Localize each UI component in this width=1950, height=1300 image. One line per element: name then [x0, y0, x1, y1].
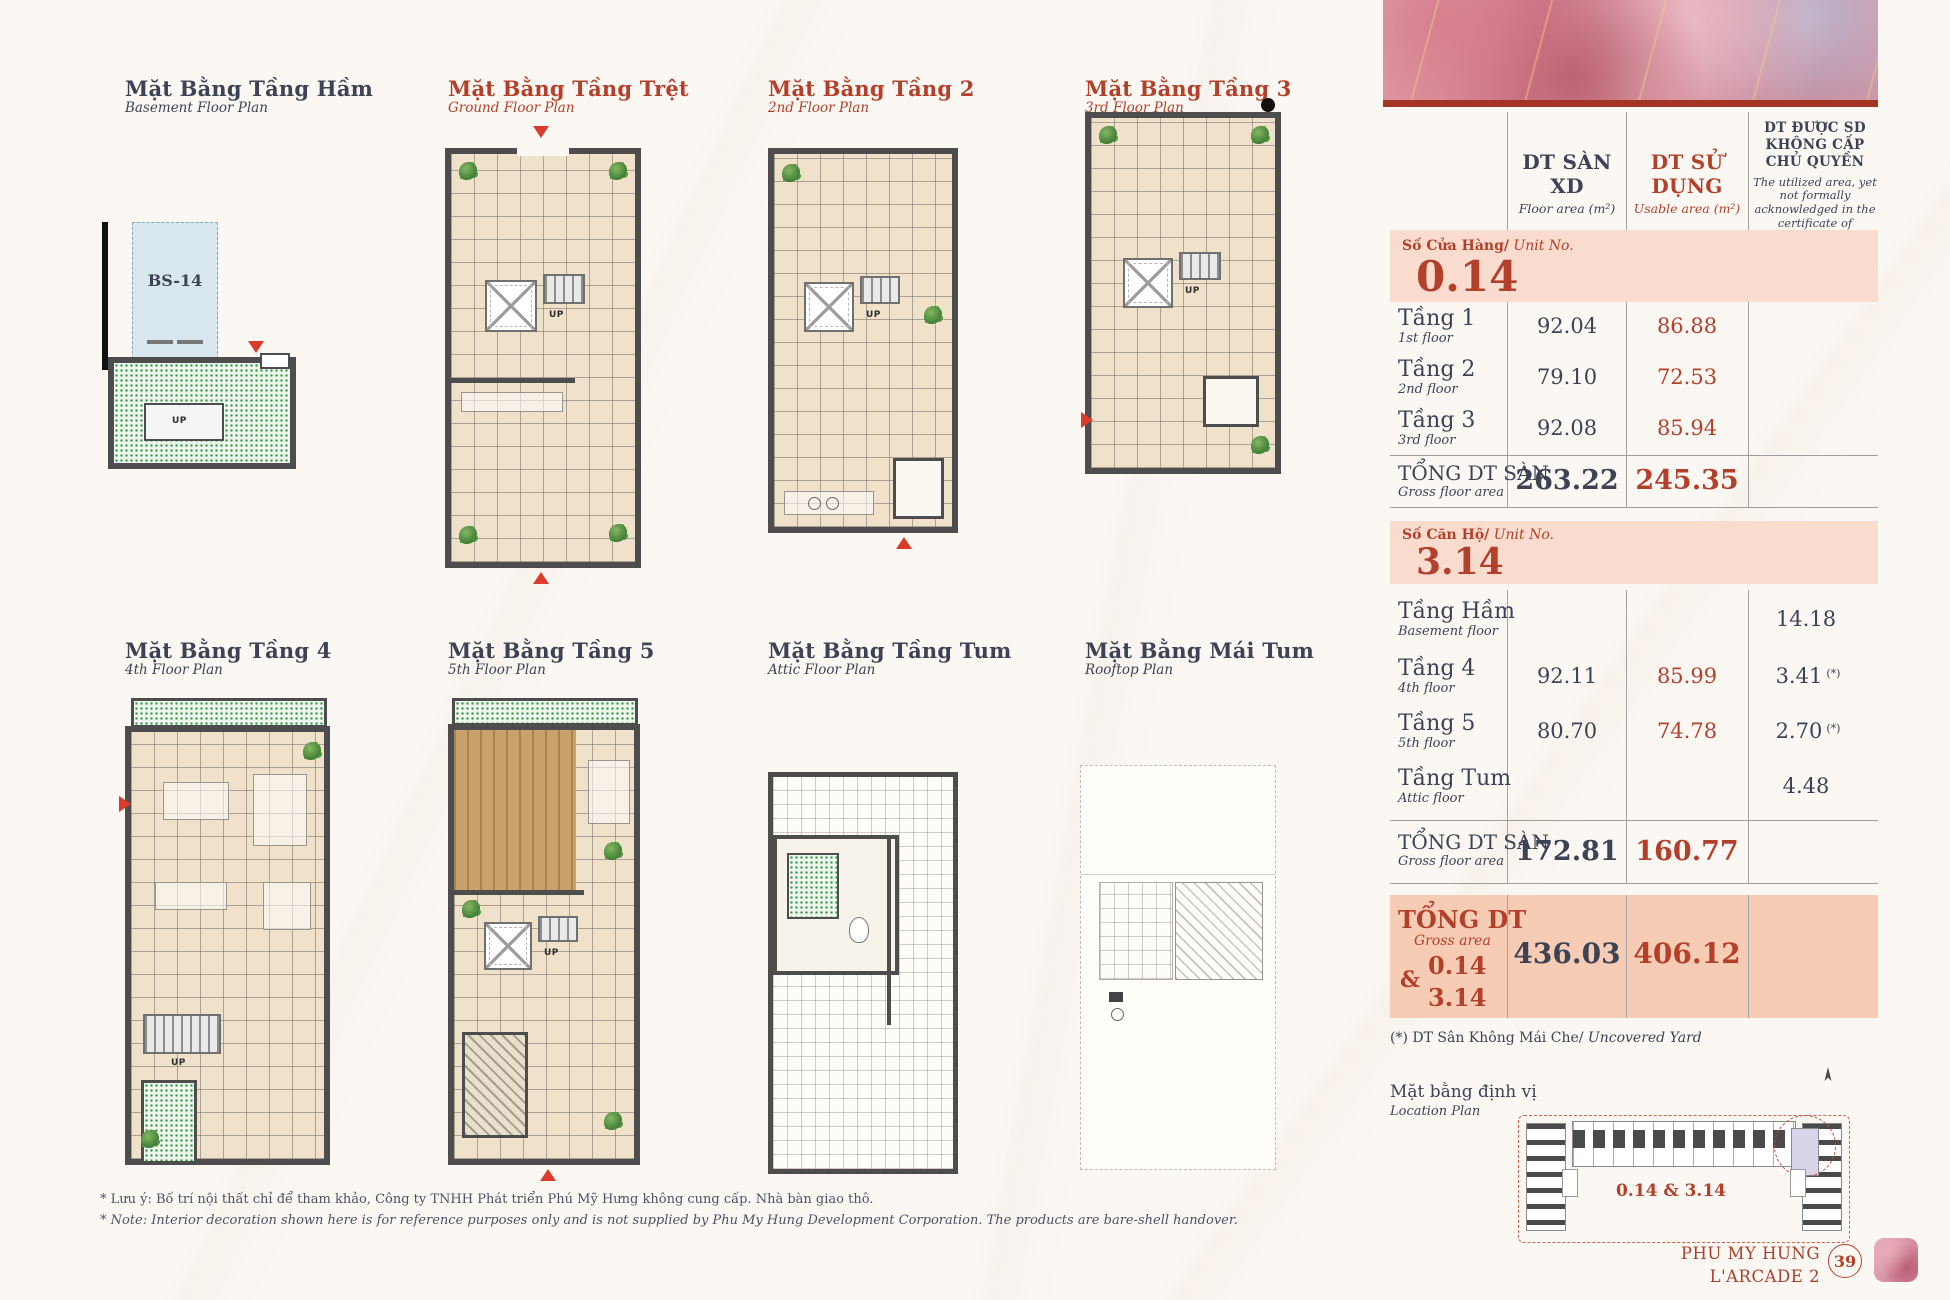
entry-step [260, 353, 290, 369]
fifth-floor-plan: UP [448, 698, 640, 1165]
floor-area-value: 92.08 [1508, 416, 1626, 440]
brand-line2: L'ARCADE 2 [1620, 1265, 1820, 1288]
elevator-shaft [787, 853, 839, 919]
compass-icon [1820, 1066, 1836, 1084]
second-floor-plan: UP [768, 148, 958, 533]
unit-banner-shop: Số Cửa Hàng/ Unit No. 0.14 [1390, 230, 1878, 302]
plan-subtitle-2nd: 2nd Floor Plan [768, 100, 869, 116]
total-usable-area: 245.35 [1627, 465, 1747, 496]
bed [253, 774, 307, 846]
up-label: UP [172, 416, 187, 426]
plan-subtitle-rooftop: Rooftop Plan [1085, 662, 1173, 678]
entrance-marker-icon [119, 796, 131, 812]
table-row-floor4: Tầng 44th floor 92.11 85.99 3.41(*) [1390, 652, 1878, 707]
banner-divider [1383, 100, 1878, 107]
brochure-page: { "palette":{"accent_red":"#b2402b","dar… [0, 0, 1950, 1300]
table-row-floor3: Tầng 33rd floor 92.08 85.94 [1390, 404, 1878, 455]
plant-icon [462, 900, 480, 918]
grand-total-amp: & [1400, 967, 1420, 993]
column-divider [1748, 112, 1749, 230]
fourth-floor-plan: UP [125, 698, 330, 1165]
entrance-marker-icon [533, 572, 549, 584]
bed [588, 760, 630, 824]
roof-drain [1111, 1008, 1124, 1021]
attic-floor-plan [768, 772, 958, 1174]
uncertified-area-value: 2.70(*) [1749, 719, 1867, 743]
bathroom [1203, 376, 1259, 427]
row-label-en: 1st floor [1398, 331, 1475, 346]
plant-icon [459, 526, 477, 544]
table-row-floor5: Tầng 55th floor 80.70 74.78 2.70(*) [1390, 707, 1878, 762]
up-label: UP [544, 948, 559, 958]
uncertified-area-value [1749, 365, 1867, 389]
grand-total-unit2: 3.14 [1428, 983, 1486, 1012]
unit-number-apartment: 3.14 [1416, 541, 1504, 583]
roof-panel [1099, 882, 1173, 980]
plant-icon [1251, 126, 1269, 144]
usable-area-value: 85.94 [1627, 416, 1747, 440]
total-usable-area: 160.77 [1627, 836, 1747, 867]
entrance-marker-icon [540, 1169, 556, 1181]
unit-banner-apartment: Số Căn Hộ/ Unit No. 3.14 [1390, 521, 1878, 584]
table-row-attic: Tầng TumAttic floor 4.48 [1390, 762, 1878, 820]
header-usable-area-sub: Usable area (m²) [1627, 201, 1747, 216]
plant-icon [782, 164, 800, 182]
row-label: Tầng 1 [1398, 307, 1475, 331]
main-room: UP [448, 724, 640, 1165]
ramp-step [177, 340, 203, 344]
header-floor-area: DT SÀN XD Floor area (m²) [1508, 150, 1626, 216]
wall [102, 222, 108, 370]
main-room: UP [768, 148, 958, 533]
total-floor-area: 172.81 [1508, 836, 1626, 867]
uncertified-area-value [1749, 314, 1867, 338]
plant-icon [604, 1112, 622, 1130]
entrance-marker-icon [896, 537, 912, 549]
note-en: * Note: Interior decoration shown here i… [100, 1213, 1238, 1228]
row-label: Tầng 4 [1398, 657, 1475, 681]
header-floor-area-title: DT SÀN XD [1508, 150, 1626, 198]
header-usable-area-title: DT SỬ DỤNG [1627, 150, 1747, 198]
total-floor-area: 263.22 [1508, 465, 1626, 496]
door-gap [517, 146, 569, 156]
grand-usable-area: 406.12 [1627, 937, 1747, 970]
unit-number-shop: 0.14 [1416, 252, 1518, 301]
row-label-en: Attic floor [1398, 791, 1511, 806]
marble-artwork-banner [1383, 0, 1878, 100]
floor-area-value: 92.11 [1508, 664, 1626, 688]
bathroom [893, 458, 944, 519]
ground-floor-plan: UP [445, 148, 641, 568]
plan-title-5th: Mặt Bằng Tầng 5 [448, 638, 655, 663]
plant-icon [604, 842, 622, 860]
row-label-en: Basement floor [1398, 624, 1515, 639]
toilet [849, 917, 869, 943]
hatched-roof-panel [1175, 882, 1263, 980]
section-marker-icon [1261, 98, 1275, 112]
roof-area [768, 772, 958, 1174]
footnote: (*) DT Sân Không Mái Che/ Uncovered Yard [1390, 1030, 1702, 1046]
bathroom [462, 1032, 528, 1138]
main-room: UP [445, 148, 641, 568]
plan-subtitle-5th: 5th Floor Plan [448, 662, 546, 678]
shophouse-strip [1572, 1121, 1796, 1167]
floor-area-value: 80.70 [1508, 719, 1626, 743]
plan-title-4th: Mặt Bằng Tầng 4 [125, 638, 332, 663]
elevator-shaft [484, 922, 532, 970]
plan-title-ground: Mặt Bằng Tầng Trệt [448, 76, 689, 101]
usable-area-value: 86.88 [1627, 314, 1747, 338]
plan-title-basement: Mặt Bằng Tầng Hầm [125, 76, 373, 101]
brand-line1: PHU MY HUNG [1620, 1242, 1820, 1265]
usable-area-value: 72.53 [1627, 365, 1747, 389]
location-plan-diagram: 0.14 & 3.14 [1518, 1115, 1850, 1243]
plan-subtitle-attic: Attic Floor Plan [768, 662, 875, 678]
row-divider [1390, 883, 1878, 884]
grand-total-label-en: Gross area [1414, 933, 1491, 949]
elevator-shaft [804, 282, 854, 332]
up-label: UP [1185, 286, 1200, 296]
plan-subtitle-ground: Ground Floor Plan [448, 100, 575, 116]
planter-box [141, 1080, 197, 1164]
plant-icon [609, 162, 627, 180]
plan-title-attic: Mặt Bằng Tầng Tum [768, 638, 1012, 663]
uncertified-area-value [1749, 416, 1867, 440]
unit-row [1573, 1130, 1795, 1148]
table-row-total-shop: TỔNG DT SÀNGross floor area 263.22 245.3… [1390, 455, 1878, 507]
main-room: UP [1085, 112, 1281, 474]
up-label: UP [866, 310, 881, 320]
wall [887, 835, 891, 1025]
row-label-en: 3rd floor [1398, 433, 1475, 448]
wall [451, 378, 575, 383]
plant-icon [303, 742, 321, 760]
grand-floor-area: 436.03 [1508, 937, 1626, 970]
plant-icon [459, 162, 477, 180]
wall [454, 890, 584, 895]
parking-room: UP [108, 357, 296, 469]
stairs [860, 276, 900, 304]
stairs [143, 1014, 221, 1054]
third-floor-plan: UP [1085, 112, 1281, 474]
plan-title-rooftop: Mặt Bằng Mái Tum [1085, 638, 1314, 663]
attic-room [773, 835, 899, 975]
cabinet [263, 882, 311, 930]
table [163, 782, 229, 820]
up-label: UP [549, 310, 564, 320]
stair-box: UP [144, 403, 224, 441]
plan-subtitle-basement: Basement Floor Plan [125, 100, 268, 116]
ramp-step [147, 340, 173, 344]
row-label-en: 2nd floor [1398, 382, 1475, 397]
rooftop-plan [1080, 765, 1276, 1170]
table-row-floor1: Tầng 11st floor 92.04 86.88 [1390, 302, 1878, 353]
elevator-shaft [485, 280, 537, 332]
plant-icon [1099, 126, 1117, 144]
uncertified-area-value: 4.48 [1749, 774, 1867, 798]
header-uncertified-area: DT ĐƯỢC SD KHÔNG CẤP CHỦ QUYỀN The utili… [1752, 120, 1878, 245]
brand-text: PHU MY HUNG L'ARCADE 2 [1620, 1242, 1820, 1288]
up-label: UP [171, 1058, 186, 1068]
location-plan-subtitle: Location Plan [1390, 1104, 1480, 1119]
stove-burner [826, 497, 839, 510]
entrance-marker-icon [533, 126, 549, 138]
stairs [1179, 252, 1221, 280]
wing-block [1790, 1169, 1806, 1197]
entrance-marker-icon [1081, 412, 1093, 428]
usable-area-value: 85.99 [1627, 664, 1747, 688]
uncertified-area-value: 14.18 [1749, 607, 1867, 631]
usable-area-value: 74.78 [1627, 719, 1747, 743]
highlight-circle [1774, 1115, 1836, 1177]
column-divider [1507, 895, 1508, 1018]
row-divider [1390, 507, 1878, 508]
row-label: Tầng 3 [1398, 409, 1475, 433]
plan-title-2nd: Mặt Bằng Tầng 2 [768, 76, 975, 101]
table-row-basement: Tầng HầmBasement floor 14.18 [1390, 590, 1878, 652]
page-number-badge: 39 [1828, 1244, 1862, 1278]
ramp-area: BS-14 [132, 222, 218, 359]
note-vi: * Lưu ý: Bố trí nội thất chỉ để tham khả… [100, 1192, 873, 1207]
plan-title-3rd: Mặt Bằng Tầng 3 [1085, 76, 1292, 101]
wing-block [1562, 1169, 1578, 1197]
floor-area-value: 79.10 [1508, 365, 1626, 389]
unit-code-label: BS-14 [133, 271, 217, 290]
sofa [155, 882, 227, 910]
location-unit-label: 0.14 & 3.14 [1616, 1181, 1726, 1201]
row-label: Tầng Hầm [1398, 600, 1515, 624]
upper-roof [1081, 766, 1275, 875]
brand-logo [1874, 1238, 1918, 1282]
basement-floor-plan: BS-14 UP [100, 175, 310, 475]
table-row-total-apartment: TỔNG DT SÀNGross floor area 172.81 160.7… [1390, 820, 1878, 883]
plant-icon [1251, 436, 1269, 454]
wood-deck [454, 730, 576, 890]
plan-subtitle-4th: 4th Floor Plan [125, 662, 223, 678]
kitchen-counter [461, 392, 563, 412]
location-plan-title: Mặt bằng định vị [1390, 1082, 1537, 1102]
main-room: UP [125, 726, 330, 1165]
planter-strip [131, 698, 327, 728]
roof-fixture [1109, 992, 1123, 1002]
row-label: Tầng Tum [1398, 767, 1511, 791]
grand-total-block: TỔNG DT Gross area & 0.14 3.14 436.03 40… [1390, 895, 1878, 1018]
floor-area-value: 92.04 [1508, 314, 1626, 338]
elevator-shaft [1123, 258, 1173, 308]
column-divider [1748, 895, 1749, 1018]
row-label: Tầng 5 [1398, 712, 1475, 736]
stove-burner [808, 497, 821, 510]
entrance-marker-icon [248, 341, 264, 353]
plant-icon [924, 306, 942, 324]
uncertified-area-value: 3.41(*) [1749, 664, 1867, 688]
row-label-en: 5th floor [1398, 736, 1475, 751]
table-row-floor2: Tầng 22nd floor 79.10 72.53 [1390, 353, 1878, 404]
row-label-en: 4th floor [1398, 681, 1475, 696]
header-usable-area: DT SỬ DỤNG Usable area (m²) [1627, 150, 1747, 216]
tower-block [1526, 1123, 1566, 1231]
stairs [538, 916, 578, 942]
plant-icon [609, 524, 627, 542]
header-uncertified-title: DT ĐƯỢC SD KHÔNG CẤP CHỦ QUYỀN [1752, 120, 1878, 171]
row-label: Tầng 2 [1398, 358, 1475, 382]
header-floor-area-sub: Floor area (m²) [1508, 201, 1626, 216]
grand-total-unit1: 0.14 [1428, 951, 1486, 980]
column-divider [1626, 895, 1627, 1018]
planter-strip [452, 698, 638, 726]
roof-outline [1080, 765, 1276, 1170]
stairs [543, 274, 585, 304]
